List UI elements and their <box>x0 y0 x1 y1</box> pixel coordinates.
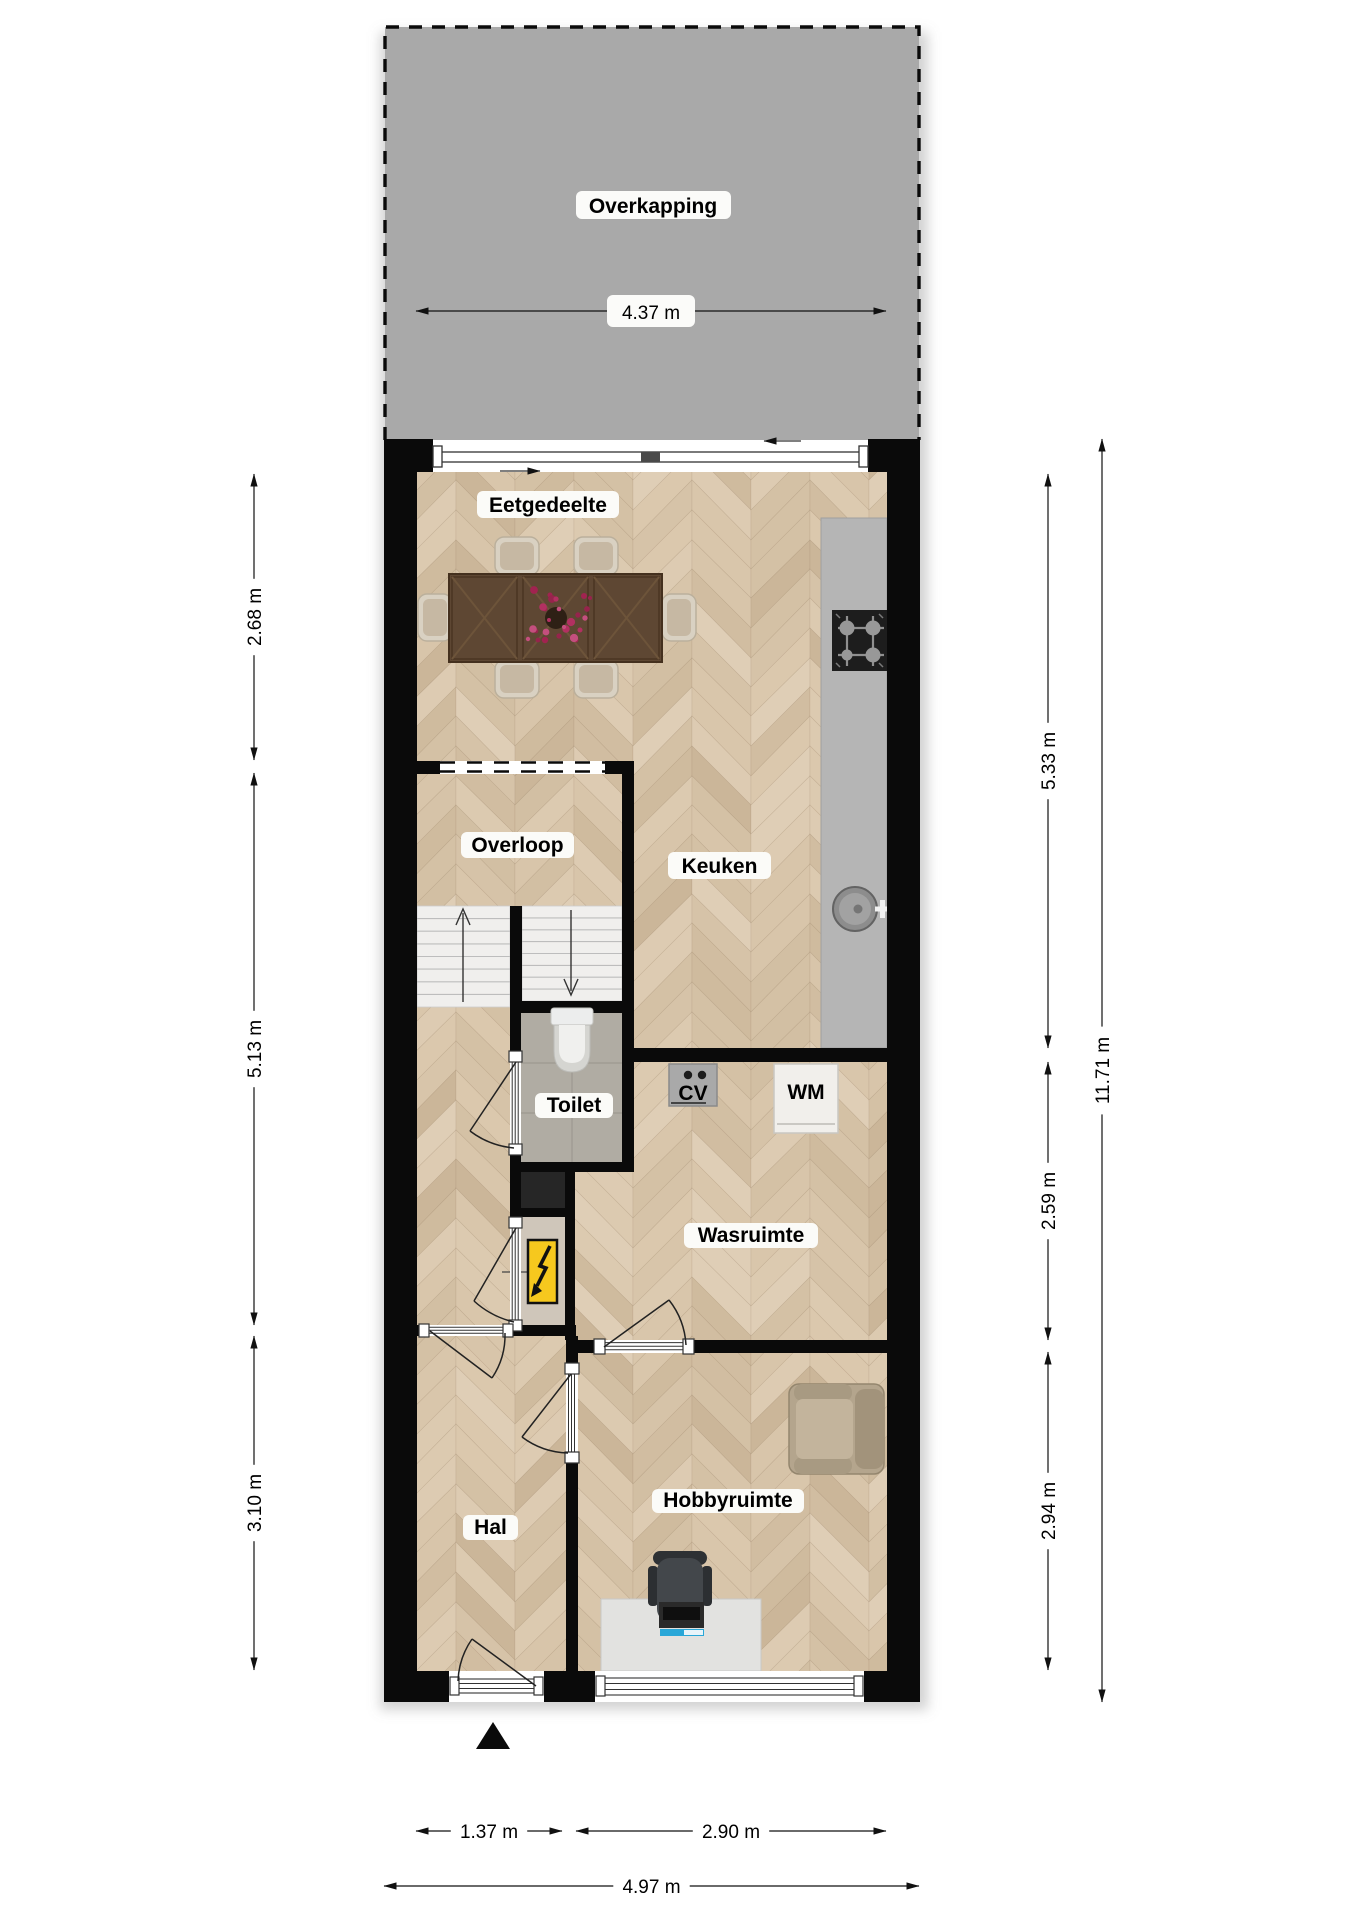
svg-text:Wasruimte: Wasruimte <box>698 1224 805 1247</box>
svg-text:3.10 m: 3.10 m <box>245 1474 266 1532</box>
svg-text:Hobbyruimte: Hobbyruimte <box>663 1489 793 1512</box>
svg-text:2.68 m: 2.68 m <box>245 588 266 646</box>
svg-text:WM: WM <box>787 1081 824 1104</box>
svg-text:Eetgedeelte: Eetgedeelte <box>489 494 607 517</box>
svg-text:Overloop: Overloop <box>471 834 563 857</box>
svg-text:1.37 m: 1.37 m <box>460 1822 518 1843</box>
svg-text:4.97 m: 4.97 m <box>622 1877 680 1898</box>
svg-text:11.71 m: 11.71 m <box>1093 1037 1114 1104</box>
svg-text:4.37 m: 4.37 m <box>622 303 680 324</box>
svg-text:Hal: Hal <box>474 1516 507 1539</box>
svg-text:2.90 m: 2.90 m <box>702 1822 760 1843</box>
svg-text:Overkapping: Overkapping <box>589 195 717 218</box>
svg-text:5.33 m: 5.33 m <box>1039 732 1060 790</box>
svg-text:5.13 m: 5.13 m <box>245 1020 266 1078</box>
svg-text:Toilet: Toilet <box>547 1094 601 1117</box>
svg-text:2.59 m: 2.59 m <box>1039 1172 1060 1230</box>
svg-text:CV: CV <box>678 1082 707 1105</box>
svg-text:Keuken: Keuken <box>682 855 758 878</box>
svg-text:2.94 m: 2.94 m <box>1039 1482 1060 1540</box>
